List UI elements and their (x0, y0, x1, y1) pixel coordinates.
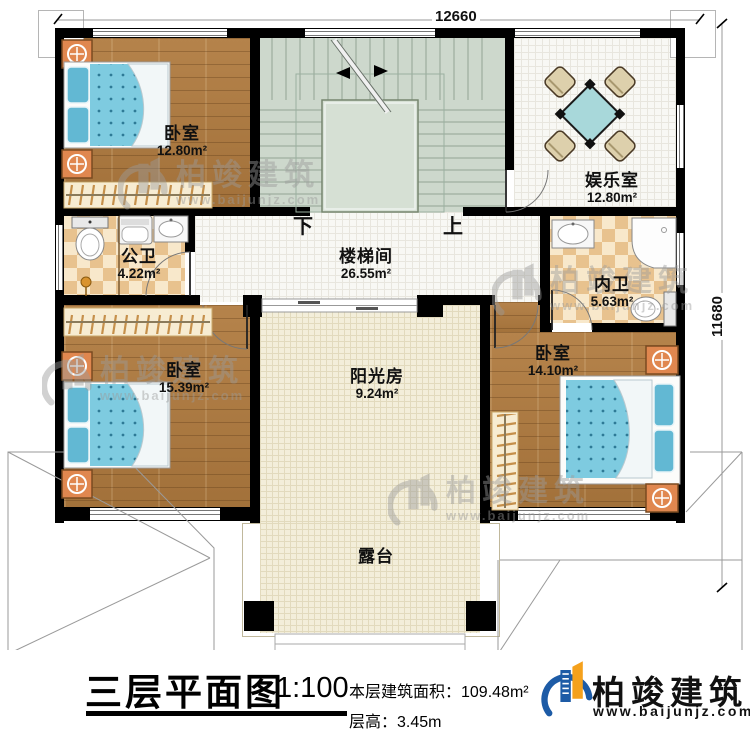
floor-area-label: 本层建筑面积：109.48m² (349, 678, 529, 702)
wall-segment (592, 323, 685, 332)
wall-segment (227, 28, 305, 38)
title-underline (86, 711, 347, 716)
room-floor-terrace (260, 523, 480, 633)
window-top-bedroom (93, 28, 227, 38)
watermark: 柏竣建筑 www.baijunjz.com (118, 156, 320, 214)
stair-down-label: 下 (288, 210, 318, 239)
watermark-logo-icon (42, 352, 92, 410)
room-label-bedroom-bottom-right: 卧室 14.10m² (503, 345, 603, 379)
wall-segment (185, 216, 195, 252)
floor-plan: 卧室 12.80m² 娱乐室 12.80m² 公卫 4.22m² 楼梯间 26.… (0, 0, 750, 734)
watermark-logo-icon (388, 472, 438, 530)
window-bottom-bedroom-left (90, 507, 220, 521)
wall-segment (650, 507, 685, 521)
room-label-terrace: 露台 (326, 548, 426, 567)
company-url: www.baijunjz.com (593, 703, 750, 719)
wall-segment (505, 207, 685, 216)
title-block: 三层平面图 1:100 本层建筑面积：109.48m² 层高：3.45m 柏竣建… (0, 650, 750, 734)
wall-segment (676, 285, 685, 523)
room-label-entertainment: 娱乐室 12.80m² (557, 172, 667, 206)
wall-segment (55, 507, 90, 521)
window-top-stairwell (305, 28, 435, 38)
dimension-line-top (54, 14, 704, 24)
wall-segment (505, 28, 514, 170)
room-label-public-bathroom: 公卫 4.22m² (89, 248, 189, 282)
wall-segment (55, 295, 200, 305)
wall-segment (676, 28, 685, 105)
terrace-column-right (466, 601, 496, 631)
room-label-sunroom: 阳光房 9.24m² (327, 368, 427, 402)
wall-segment (417, 295, 443, 317)
wall-segment (676, 168, 685, 233)
page-title: 三层平面图 (85, 662, 285, 716)
room-label-bedroom-top-left: 卧室 12.80m² (132, 125, 232, 159)
wall-segment (435, 28, 515, 38)
dimension-right-label: 11680 (709, 293, 726, 340)
terrace-column-left (244, 601, 274, 631)
window-top-entertainment (515, 28, 640, 38)
wall-segment (220, 507, 260, 521)
watermark-logo-icon (118, 156, 168, 214)
room-label-ensuite-bathroom: 内卫 5.63m² (562, 276, 662, 310)
stair-up-label: 上 (438, 210, 468, 239)
window-left-bathroom (55, 225, 64, 290)
wall-segment (250, 295, 260, 523)
company-logo-icon (538, 658, 594, 727)
floor-height-label: 层高：3.45m (349, 708, 441, 732)
window-right-entertainment (676, 105, 685, 168)
wall-segment (55, 28, 64, 225)
watermark: 柏竣建筑 www.baijunjz.com (388, 472, 590, 530)
watermark-logo-icon (492, 262, 542, 320)
dimension-top-label: 12660 (432, 8, 480, 25)
wall-segment (540, 323, 552, 332)
room-label-bedroom-bottom-left: 卧室 15.39m² (134, 362, 234, 396)
room-label-stair-hall: 楼梯间 26.55m² (316, 248, 416, 282)
scale-label: 1:100 (276, 672, 349, 705)
